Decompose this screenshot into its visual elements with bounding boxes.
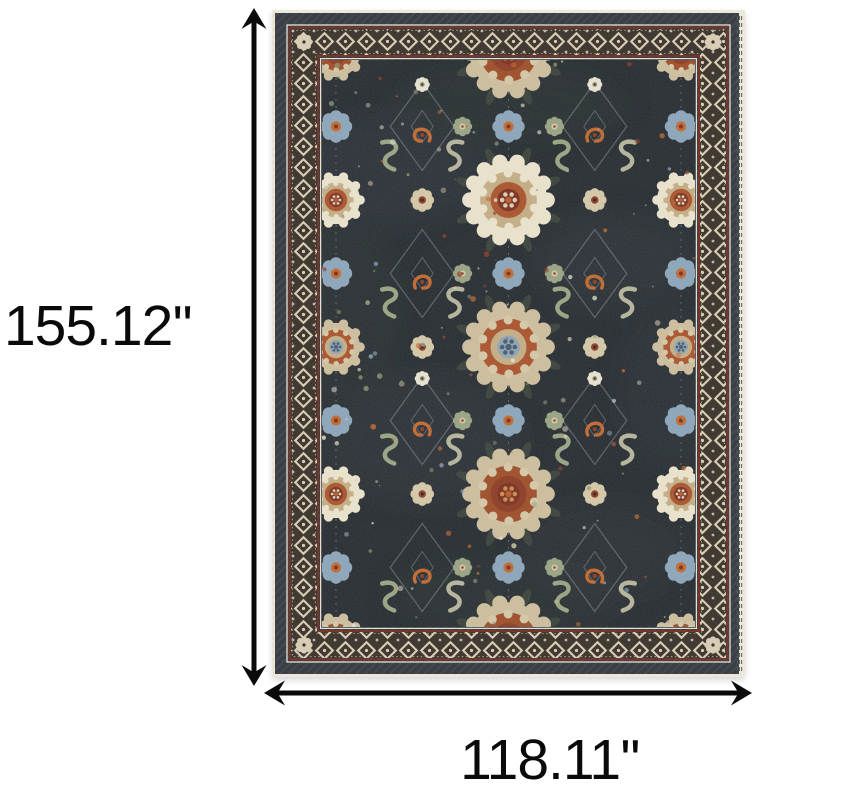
width-dimension-arrow <box>264 679 752 707</box>
product-image-canvas: 155.12'' 118.11'' <box>0 0 850 787</box>
rug-illustration <box>272 10 745 677</box>
height-dimension-arrow <box>240 8 268 686</box>
width-dimension-label: 118.11'' <box>388 729 712 792</box>
rug-photo <box>272 10 745 677</box>
height-dimension-label: 155.12'' <box>0 295 196 358</box>
